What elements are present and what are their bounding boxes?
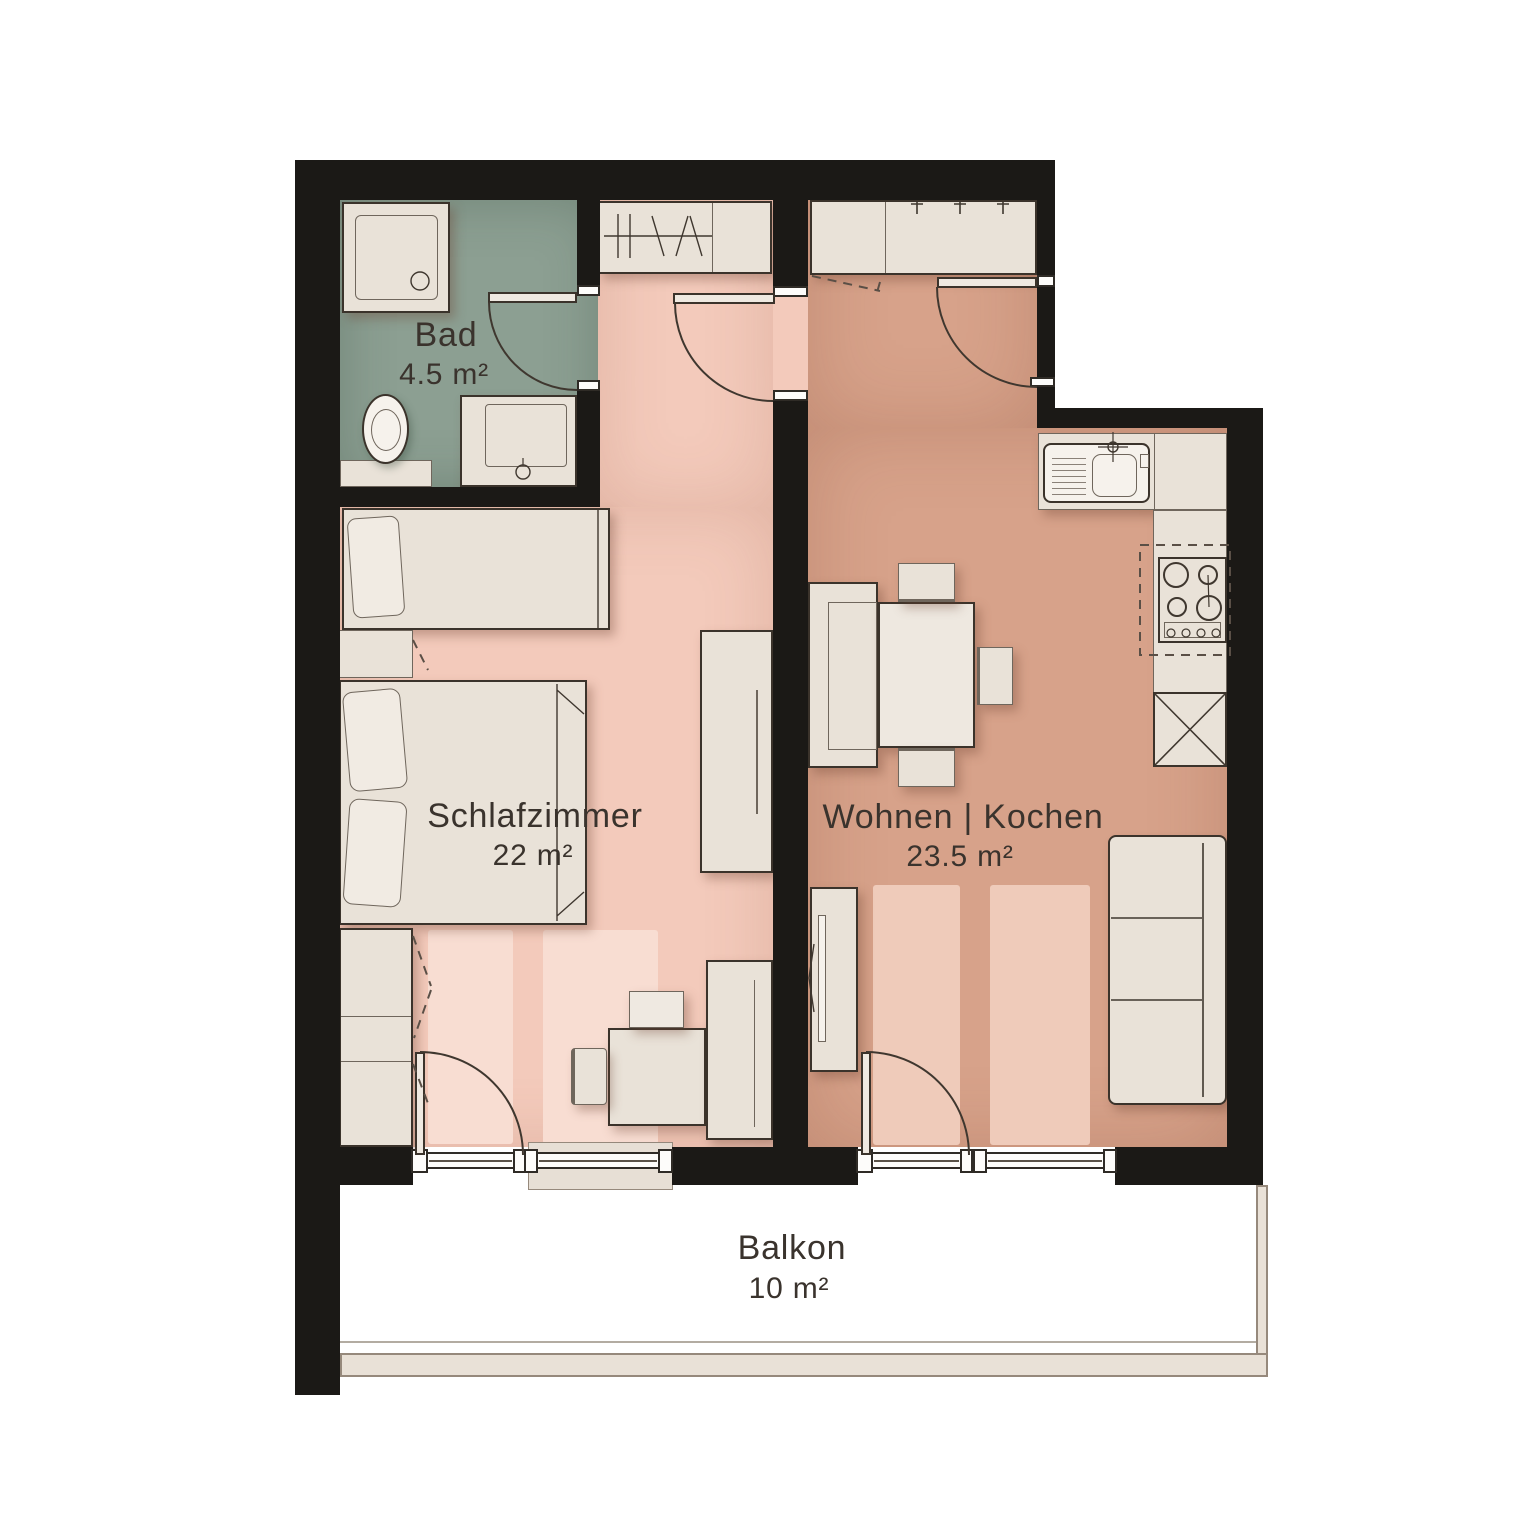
kitchen-sink — [1043, 443, 1150, 503]
entrance-door — [937, 277, 1037, 288]
hall-wardrobe — [598, 201, 772, 274]
room-area-balkon: 10 m² — [749, 1272, 830, 1306]
balcony-railing-line — [340, 1341, 1268, 1343]
double-bed-pillow — [342, 688, 408, 793]
coat-rack-cabinet — [810, 200, 1037, 275]
wall — [577, 200, 600, 292]
bedroom-balcony-door — [415, 1052, 425, 1155]
wall — [340, 487, 600, 507]
window-jamb — [1103, 1149, 1117, 1173]
room-area-bad: 4.5 m² — [399, 358, 489, 392]
bedroom-rug — [428, 930, 513, 1144]
wall — [672, 1147, 858, 1185]
wall — [773, 200, 808, 292]
living-balcony-door-threshold — [871, 1152, 962, 1169]
stove — [1158, 557, 1227, 643]
window-jamb — [960, 1149, 973, 1173]
desk-monitor — [629, 991, 684, 1028]
wall — [295, 160, 1055, 200]
bedroom-dresser — [700, 630, 773, 873]
living-window — [985, 1152, 1105, 1169]
bathroom-door — [488, 292, 577, 303]
wall — [295, 160, 340, 1395]
door-jamb — [1030, 377, 1055, 387]
dining-chair — [898, 563, 955, 602]
window-jamb — [658, 1149, 673, 1173]
kitchen-tall-cabinet — [1153, 692, 1227, 767]
wall — [1115, 1147, 1263, 1185]
room-area-wohnen-kochen: 23.5 m² — [906, 840, 1013, 874]
room-area-schlafzimmer: 22 m² — [493, 839, 574, 873]
window-jamb — [973, 1149, 987, 1173]
dining-bench — [808, 582, 878, 768]
balcony-railing — [340, 1353, 1268, 1377]
door-jamb — [577, 285, 600, 296]
living-rug — [873, 885, 960, 1145]
room-label-wohnen-kochen: Wohnen | Kochen — [822, 798, 1103, 837]
dining-chair — [898, 748, 955, 787]
living-rug — [990, 885, 1090, 1145]
bedroom-door — [673, 293, 775, 304]
bedroom-wardrobe — [339, 928, 413, 1147]
tv — [818, 915, 826, 1042]
bathroom-vanity — [460, 395, 577, 487]
room-label-balkon: Balkon — [738, 1229, 847, 1268]
floor-plan: Bad 4.5 m² Schlafzimmer 22 m² Wohnen | K… — [0, 0, 1536, 1536]
shower — [342, 202, 450, 313]
living-balcony-door — [861, 1052, 871, 1155]
double-bed-pillow — [342, 798, 407, 908]
wall — [773, 398, 808, 1147]
toilet-cistern — [340, 460, 432, 487]
window-jamb — [524, 1149, 538, 1173]
desk-chair — [571, 1048, 607, 1105]
bedroom-sideboard — [706, 960, 773, 1140]
dining-table — [878, 602, 975, 748]
sofa — [1108, 835, 1227, 1105]
bedroom-balcony-door-threshold — [426, 1152, 515, 1169]
wall — [1227, 428, 1263, 1185]
door-jamb — [773, 390, 808, 401]
balcony-railing-right — [1256, 1185, 1268, 1355]
single-bed-pillow — [347, 515, 406, 618]
door-jamb — [577, 380, 600, 391]
wall — [1037, 408, 1263, 428]
desk — [608, 1028, 706, 1126]
dining-chair — [977, 647, 1013, 705]
door-jamb — [773, 286, 808, 297]
toilet — [362, 394, 409, 464]
wall — [340, 1147, 413, 1185]
room-label-schlafzimmer: Schlafzimmer — [427, 797, 643, 836]
door-jamb — [1037, 275, 1055, 287]
room-label-bad: Bad — [415, 316, 478, 355]
bedroom-door-threshold-floor — [773, 292, 808, 398]
nightstand — [339, 630, 413, 678]
bedroom-window — [536, 1152, 660, 1169]
